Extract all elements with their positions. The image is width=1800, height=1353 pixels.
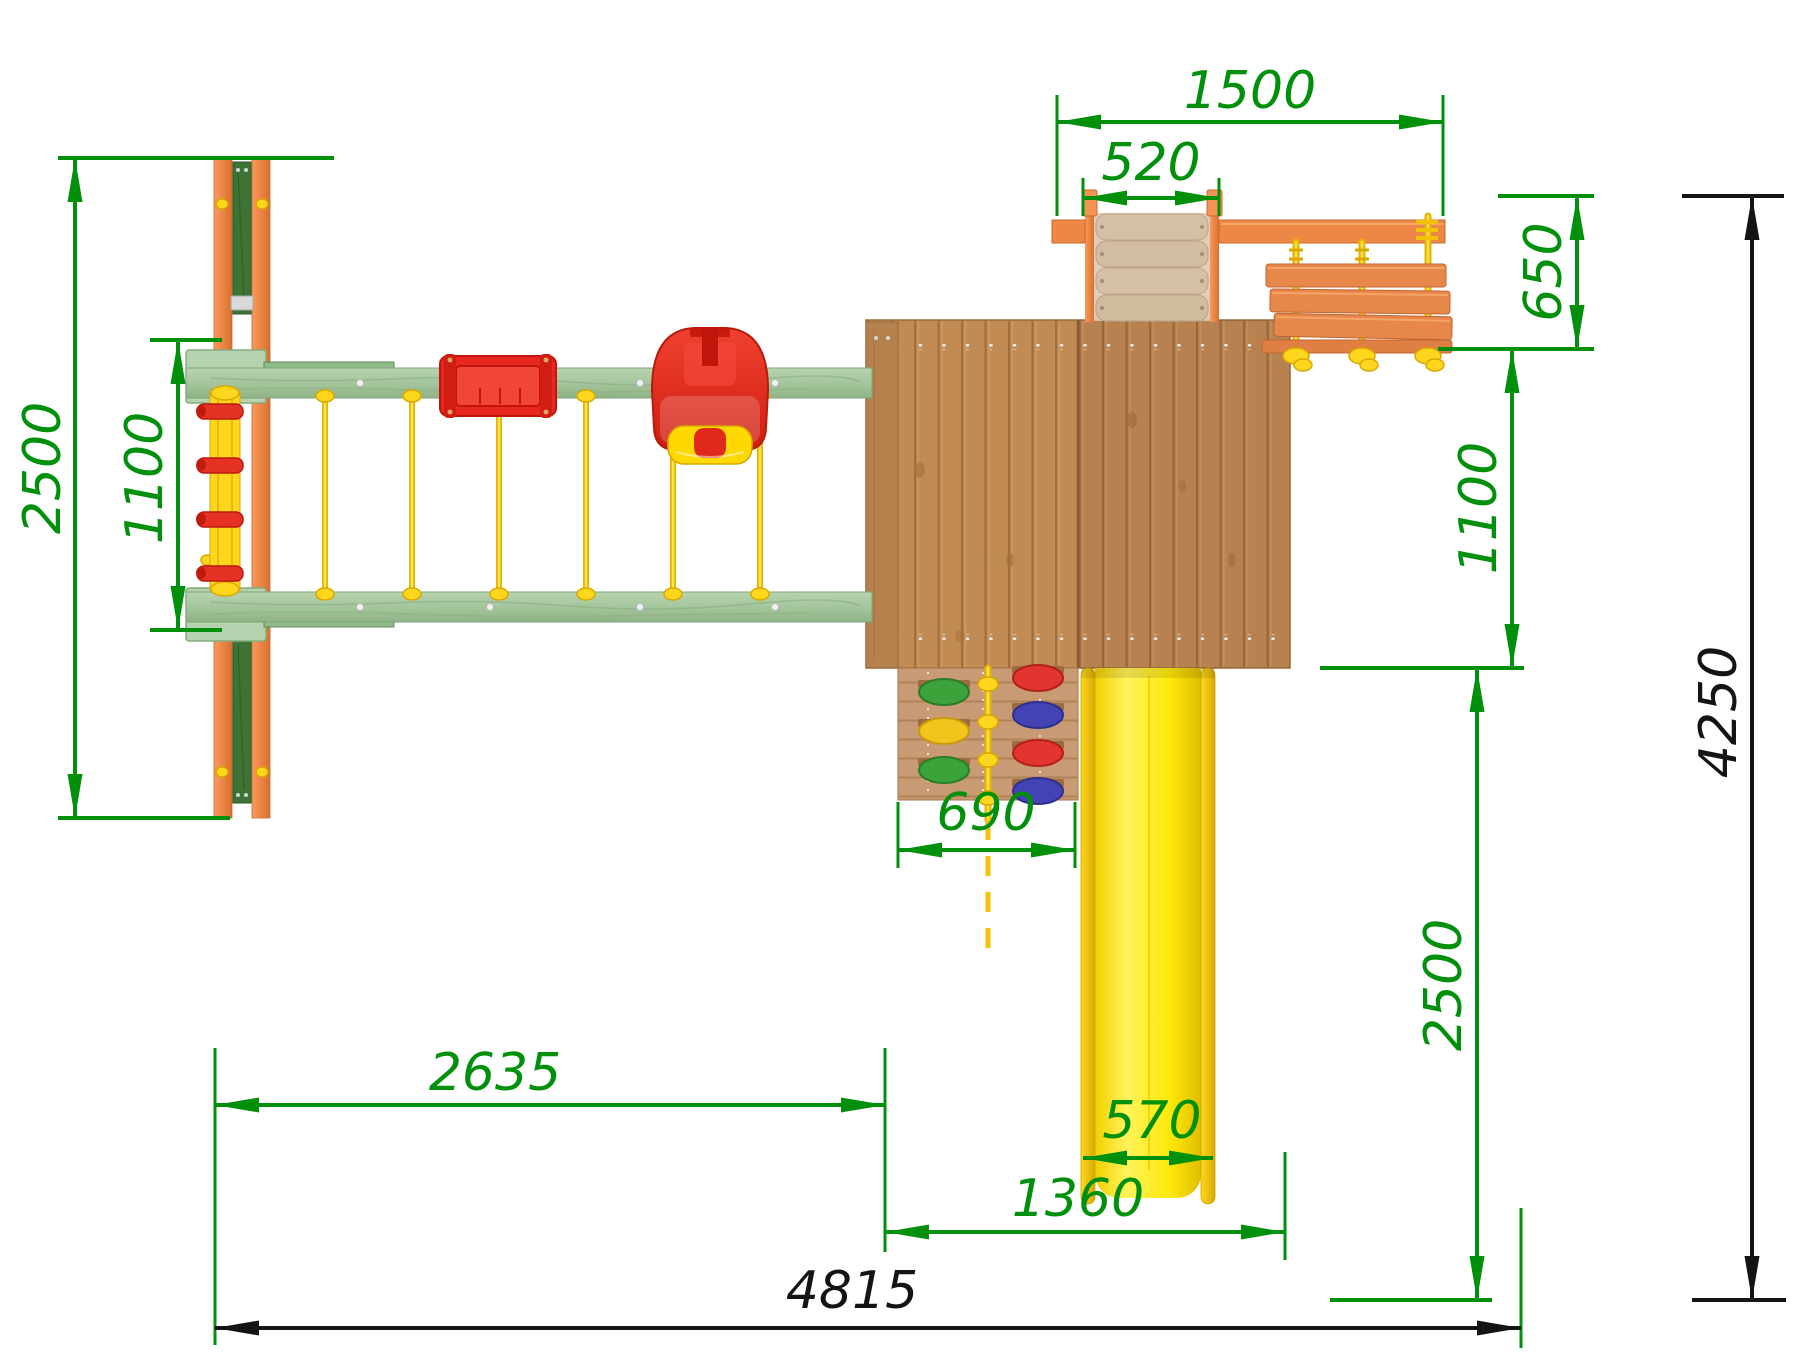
climbing-ramp — [1082, 190, 1222, 322]
ramp-logs — [1096, 214, 1208, 321]
swing-chain — [577, 390, 595, 600]
climb-hold-green-2 — [918, 757, 970, 783]
dim-label-1360: 1360 — [1012, 1169, 1144, 1229]
playground-top-view-drawing: 1500 520 650 1100 2500 4250 2500 — [0, 0, 1800, 1353]
climb-hold-green-1 — [918, 679, 970, 705]
tower-deck — [866, 320, 1290, 668]
dim-label-2500-left: 2500 — [13, 402, 73, 534]
slide-rail-left — [1081, 668, 1095, 1204]
dim-4815: 4815 — [215, 1208, 1521, 1348]
swing-chain — [316, 390, 334, 600]
dim-570: 570 — [1083, 1091, 1213, 1158]
climb-hold-red-1 — [1012, 665, 1064, 691]
dim-1100-right: 1100 — [1320, 349, 1524, 668]
swing-chain — [403, 390, 421, 600]
frame-brace-bottom — [233, 637, 251, 803]
dim-650: 650 — [1438, 196, 1594, 349]
deck-screw-row-bottom — [872, 634, 1286, 640]
dim-label-1100-right: 1100 — [1449, 442, 1509, 574]
climb-hold-blue-1 — [1012, 702, 1064, 728]
rope-ladder-rungs — [1262, 264, 1452, 353]
frame-post-right — [252, 158, 270, 818]
baby-swing-seat — [652, 328, 768, 464]
dim-2635: 2635 — [215, 1043, 885, 1345]
dim-label-4250: 4250 — [1689, 646, 1749, 778]
dim-label-2635: 2635 — [429, 1043, 561, 1103]
dim-4250: 4250 — [1682, 196, 1786, 1300]
dim-label-2500-right: 2500 — [1414, 919, 1474, 1051]
rope-ladder-knots — [1283, 348, 1444, 371]
flat-swing-seat — [440, 354, 556, 418]
dim-label-1500: 1500 — [1184, 61, 1316, 121]
frame-brace-top — [233, 162, 251, 314]
dim-label-690: 690 — [936, 783, 1035, 843]
climb-hold-red-2 — [1012, 740, 1064, 766]
slide-rail-right — [1201, 668, 1215, 1204]
climb-hold-yellow — [918, 718, 970, 744]
dim-2500-right: 2500 — [1330, 668, 1492, 1300]
swing-chain — [490, 390, 508, 600]
drawing-canvas: 1500 520 650 1100 2500 4250 2500 — [0, 0, 1800, 1353]
dim-520: 520 — [1083, 133, 1219, 216]
dim-label-650: 650 — [1514, 222, 1574, 321]
deck-screw-row-top — [872, 344, 1286, 350]
dim-label-520: 520 — [1101, 133, 1200, 193]
dim-label-1100-left: 1100 — [115, 412, 175, 544]
dim-label-570: 570 — [1102, 1091, 1201, 1151]
dim-label-4815: 4815 — [786, 1261, 918, 1321]
